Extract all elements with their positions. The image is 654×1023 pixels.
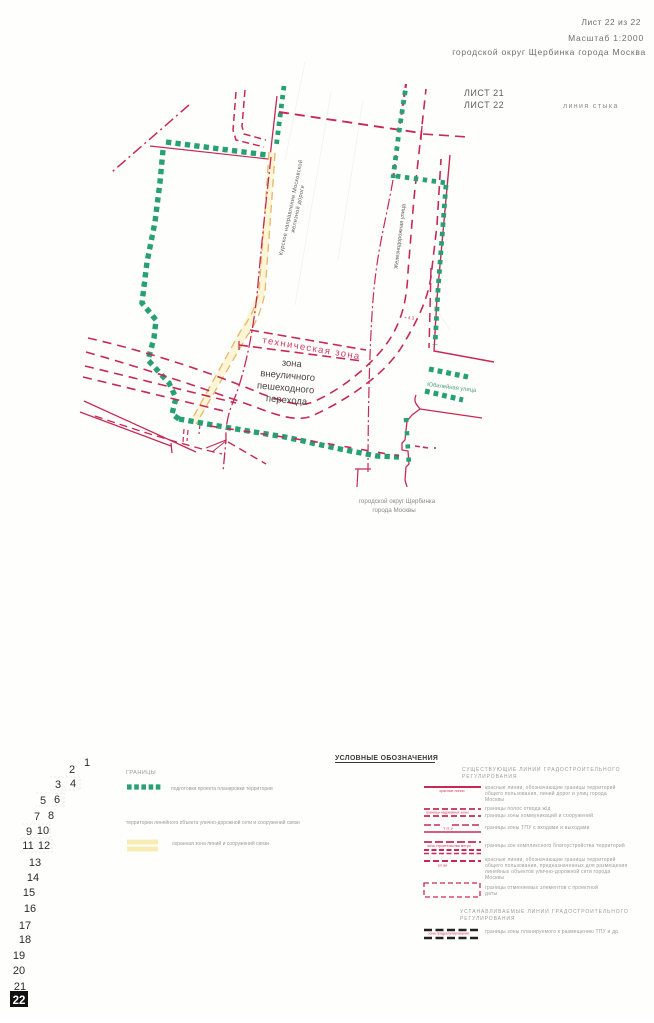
svg-text:ГРАНИЦЫ: ГРАНИЦЫ xyxy=(126,770,156,776)
svg-text:17: 17 xyxy=(19,920,31,932)
svg-text:ЛИСТ 21: ЛИСТ 21 xyxy=(464,88,504,98)
svg-text:6: 6 xyxy=(54,794,60,806)
svg-text:22: 22 xyxy=(13,995,26,1007)
svg-text:10: 10 xyxy=(37,825,49,837)
svg-text:даты: даты xyxy=(485,891,497,897)
svg-text:19: 19 xyxy=(13,950,25,962)
svg-text:зона: зона xyxy=(281,357,303,370)
svg-text:Москвы: Москвы xyxy=(485,875,504,881)
svg-text:границы полос отвода ж/д: границы полос отвода ж/д xyxy=(485,806,551,812)
svg-text:14: 14 xyxy=(27,872,39,884)
svg-text:границы зоны планируемого к: границы зоны планируемого к размещению Т… xyxy=(485,929,620,935)
svg-text:линия стыка: линия стыка xyxy=(563,103,619,110)
svg-text:красные линии, обозначающие: красные линии, обозначающие границы терр… xyxy=(485,784,616,791)
svg-text:Масштаб 1:2000: Масштаб 1:2000 xyxy=(568,33,644,43)
svg-text:12: 12 xyxy=(38,840,50,852)
svg-text:красные линии: красные линии xyxy=(439,789,464,793)
svg-text:зона строительства метро: зона строительства метро xyxy=(427,844,471,848)
svg-text:16: 16 xyxy=(24,903,36,915)
svg-text:ЛИСТ 22: ЛИСТ 22 xyxy=(464,100,504,110)
svg-text:15: 15 xyxy=(23,887,35,899)
svg-text:ул зм: ул зм xyxy=(438,864,447,868)
svg-text:границы отменяемых элементов: границы отменяемых элементов с проектной xyxy=(485,884,598,891)
svg-text:РЕГУЛИРОВАНИЯ: РЕГУЛИРОВАНИЯ xyxy=(462,774,517,780)
svg-text:2: 2 xyxy=(69,764,75,776)
svg-text:20: 20 xyxy=(13,965,25,977)
svg-text:границы зоны ТПУ с входами: границы зоны ТПУ с входами и выходами xyxy=(485,825,590,831)
svg-text:границы зон комплексного бл: границы зон комплексного благоустройства… xyxy=(485,842,625,849)
svg-text:городской округ Щербинка город: городской округ Щербинка города Москва xyxy=(452,47,646,57)
svg-text:13: 13 xyxy=(29,857,41,869)
svg-text:1: 1 xyxy=(84,757,90,769)
svg-text:охранная зона линий и соор: охранная зона линий и сооружений связи xyxy=(172,840,269,847)
svg-text:территории линейного объекта: территории линейного объекта улично-доро… xyxy=(126,819,300,826)
svg-text:подготовки проекта планировк: подготовки проекта планировки территории xyxy=(171,786,273,792)
svg-text:РЕГУЛИРОВАНИЯ: РЕГУЛИРОВАНИЯ xyxy=(460,916,515,922)
svg-text:3: 3 xyxy=(55,779,61,791)
svg-text:11: 11 xyxy=(22,840,33,852)
svg-text:Т П У: Т П У xyxy=(443,826,454,831)
svg-text:линейных объектов улично-дор: линейных объектов улично-дорожной сети г… xyxy=(485,868,610,875)
svg-text:границы надземных зоны: границы надземных зоны xyxy=(426,811,469,815)
svg-text:7: 7 xyxy=(34,811,40,823)
svg-text:красные линии, обозначающие: красные линии, обозначающие границы терр… xyxy=(485,856,616,863)
svg-text:5: 5 xyxy=(40,795,46,807)
svg-text:зона градрегулирования: зона градрегулирования xyxy=(428,932,469,936)
svg-text:города Москвы: города Москвы xyxy=(372,507,416,514)
svg-text:границы зоны коммуникаций и: границы зоны коммуникаций и сооружений xyxy=(485,812,593,819)
svg-text:городской округ Щербинка: городской округ Щербинка xyxy=(359,498,436,505)
svg-text:УСТАНАВЛИВАЕМЫЕ ЛИНИИ ГРАДОСТР: УСТАНАВЛИВАЕМЫЕ ЛИНИИ ГРАДОСТРОИТЕЛЬНОГО xyxy=(460,909,629,915)
svg-text:УСЛОВНЫЕ ОБОЗНАЧЕНИЯ: УСЛОВНЫЕ ОБОЗНАЧЕНИЯ xyxy=(335,755,438,762)
svg-text:общего пользования, линий д: общего пользования, линий дорог и улиц г… xyxy=(485,790,607,797)
svg-text:СУЩЕСТВУЮЩИЕ ЛИНИИ ГРАДОСТРОИТ: СУЩЕСТВУЮЩИЕ ЛИНИИ ГРАДОСТРОИТЕЛЬНОГО xyxy=(462,767,620,773)
svg-text:Лист 22 из 22: Лист 22 из 22 xyxy=(581,17,641,27)
svg-text:+ 4.3: + 4.3 xyxy=(404,315,415,321)
svg-text:18: 18 xyxy=(19,934,31,946)
svg-text:8: 8 xyxy=(48,810,54,822)
svg-text:9: 9 xyxy=(26,826,32,838)
svg-text:4: 4 xyxy=(70,778,76,790)
svg-text:Москвы: Москвы xyxy=(485,797,504,803)
